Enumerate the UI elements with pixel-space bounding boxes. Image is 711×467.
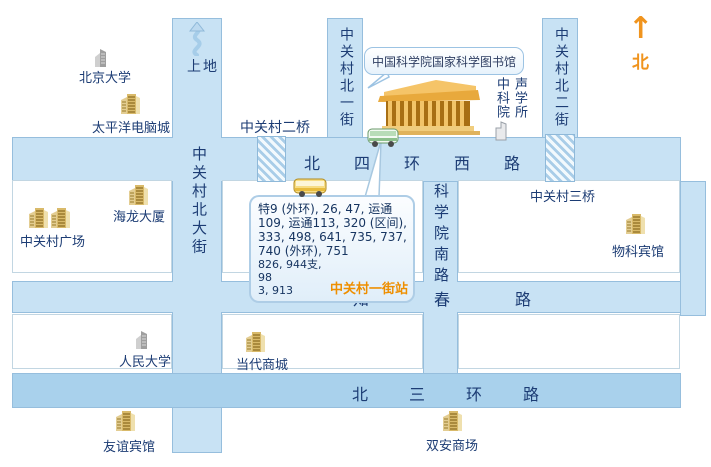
gold-building-icon — [244, 330, 266, 352]
bridge-erqiao-overpass — [257, 136, 286, 182]
road-label-north-third-ring: 北三环路 — [352, 381, 580, 405]
place-label-pacific-computer-city: 太平洋电脑城 — [92, 117, 170, 136]
bus-stop-name: 中关村一街站 — [330, 278, 408, 297]
junction-patch — [173, 281, 221, 313]
road-north-third-ring — [12, 373, 681, 408]
north-arrow-icon: ↑ — [628, 14, 653, 44]
road-label-zhongguancun-north-second: 中关村北二街 — [551, 27, 571, 129]
bus-icon — [366, 125, 400, 149]
library-callout: 中国科学院国家科学图书馆 — [364, 47, 524, 75]
city-block — [458, 314, 680, 369]
acoustics-institute-label-left: 中科院 — [492, 77, 511, 119]
place-label-zhongguancun-plaza: 中关村广场 — [20, 231, 85, 250]
road-label-kexueyuan-south: 科学院南路 — [431, 183, 452, 288]
road-label-shangdi: 上地 — [187, 56, 219, 76]
road-label-north-fourth-ring: 北四环西路 — [304, 150, 554, 174]
gold-building-icon — [624, 212, 646, 234]
gold-building-icon — [49, 206, 71, 228]
place-label-shuangan-mall: 双安商场 — [426, 435, 478, 454]
place-label-hailong-building: 海龙大厦 — [113, 206, 165, 225]
place-label-youyi-hotel: 友谊宾馆 — [103, 436, 155, 455]
bridge-label-erqiao: 中关村二桥 — [240, 117, 310, 137]
north-label: 北 — [632, 48, 649, 73]
road-continues-icon — [184, 22, 210, 56]
place-label-beijing-university: 北京大学 — [79, 67, 131, 86]
bus-routes-callout: 特9 (外环), 26, 47, 运通109, 运通113, 320 (区间),… — [249, 195, 415, 303]
library-callout-text: 中国科学院国家科学图书馆 — [372, 53, 516, 70]
acoustics-institute-label-right: 声学所 — [510, 77, 529, 119]
gray-building-icon — [93, 47, 111, 67]
road-label-zhongguancun-north-avenue: 中关村北大街 — [189, 146, 210, 257]
gold-building-icon — [27, 206, 49, 228]
gold-building-icon — [114, 409, 136, 431]
bus-routes-extra: 826, 944支, 98 3, 913 — [258, 258, 324, 297]
gold-building-icon — [119, 92, 141, 114]
bridge-label-sanqiao: 中关村三桥 — [530, 186, 595, 205]
junction-patch — [681, 281, 705, 313]
transit-map: 北四环西路 知春路 北三环路 中关村北大街 中关村北一街 中关村北二街 科学院南… — [0, 0, 711, 467]
acoustics-building-icon — [494, 119, 510, 141]
gray-building-icon — [134, 329, 152, 349]
gold-building-icon — [441, 409, 463, 431]
gold-building-icon — [127, 183, 149, 205]
bus-routes-main: 特9 (外环), 26, 47, 运通109, 运通113, 320 (区间),… — [258, 202, 410, 258]
bus-icon — [292, 175, 328, 199]
place-label-renmin-university: 人民大学 — [119, 351, 171, 370]
place-label-wuke-hotel: 物科宾馆 — [612, 241, 664, 260]
place-label-dangdai-mall: 当代商城 — [236, 354, 288, 373]
road-label-zhongguancun-north-first: 中关村北一街 — [336, 27, 356, 129]
